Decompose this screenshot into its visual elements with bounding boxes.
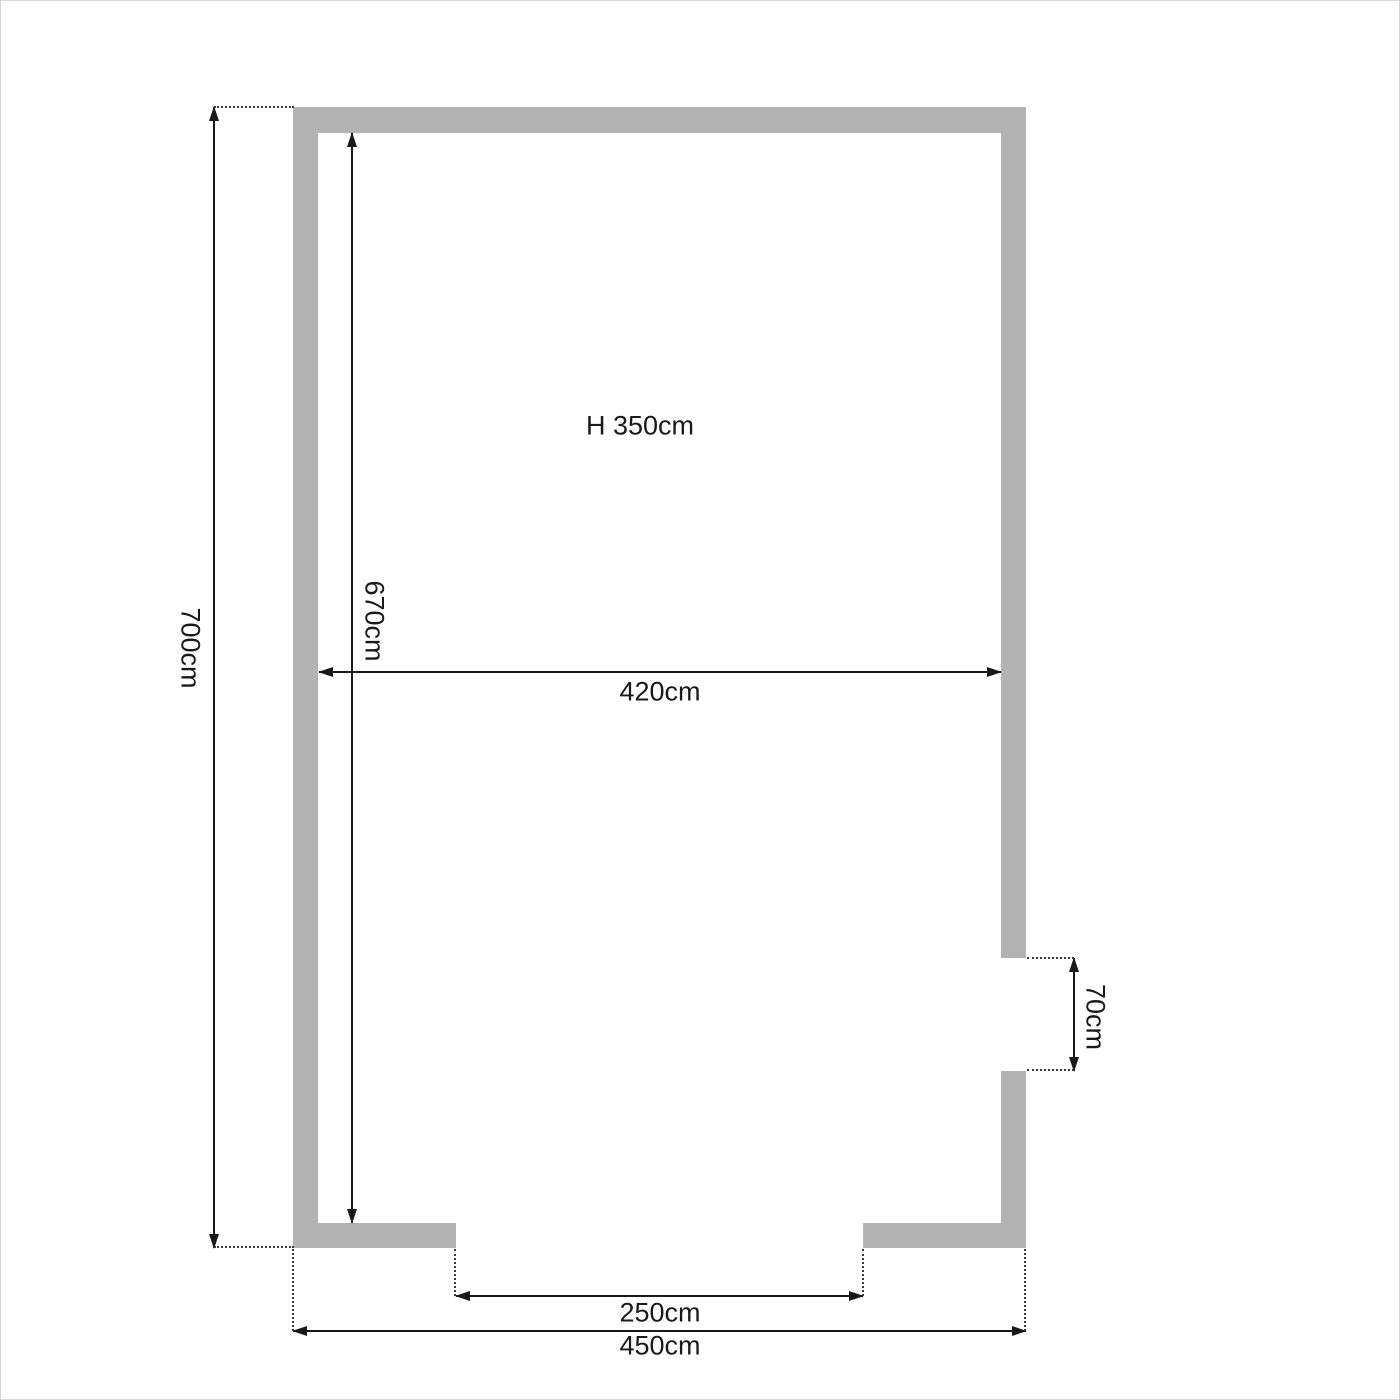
extension-line-bottom-opening-left [454,1249,456,1296]
arrowhead-up-icon [209,106,219,121]
dimension-line-inner-width [319,671,1001,673]
extension-line-outer-width-right [1024,1249,1026,1331]
wall-top [293,107,1026,133]
inner-width-label: 420cm [619,679,700,706]
wall-right-upper [1001,107,1026,958]
arrowhead-right-icon [987,667,1002,677]
outer-width-label: 450cm [619,1333,700,1360]
extension-line-bottom-left [214,1246,294,1248]
arrowhead-left-icon [318,667,333,677]
right-opening-label: 70cm [1082,984,1109,1050]
dimension-line-right-opening [1073,958,1075,1071]
ceiling-height-label: H 350cm [586,413,694,440]
wall-bottom-left [293,1223,456,1248]
dimension-line-outer-height [213,107,215,1248]
extension-line-right-door-top [1027,957,1074,959]
extension-line-right-door-bottom [1027,1069,1074,1071]
arrowhead-down-icon [347,1209,357,1224]
wall-left [293,107,318,1248]
outer-height-label: 700cm [177,607,204,688]
bottom-opening-label: 250cm [619,1300,700,1327]
arrowhead-left-icon [292,1326,307,1336]
extension-line-bottom-opening-right [862,1249,864,1296]
wall-right-lower [1001,1071,1026,1248]
dimension-line-inner-height [351,133,353,1223]
extension-line-outer-width-left [292,1249,294,1331]
arrowhead-up-icon [1069,957,1079,972]
arrowhead-up-icon [347,132,357,147]
inner-height-label: 670cm [361,580,388,661]
extension-line-top-left [214,106,294,108]
floor-plan-canvas: 700cm 670cm 420cm 70cm 250cm 450cm H 350… [0,0,1400,1400]
arrowhead-left-icon [455,1291,470,1301]
wall-bottom-right [863,1223,1026,1248]
